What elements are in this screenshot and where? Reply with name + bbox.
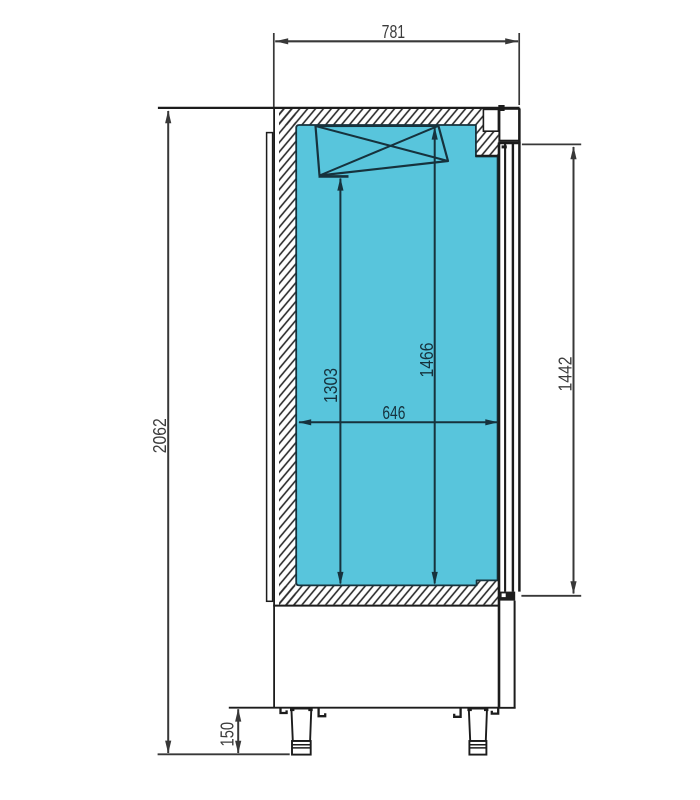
svg-text:1442: 1442 <box>556 357 576 392</box>
svg-text:646: 646 <box>382 403 405 423</box>
svg-text:781: 781 <box>382 22 406 42</box>
svg-text:1303: 1303 <box>321 368 341 403</box>
svg-text:150: 150 <box>217 722 237 747</box>
svg-text:2062: 2062 <box>150 418 170 453</box>
svg-text:1466: 1466 <box>417 343 437 378</box>
